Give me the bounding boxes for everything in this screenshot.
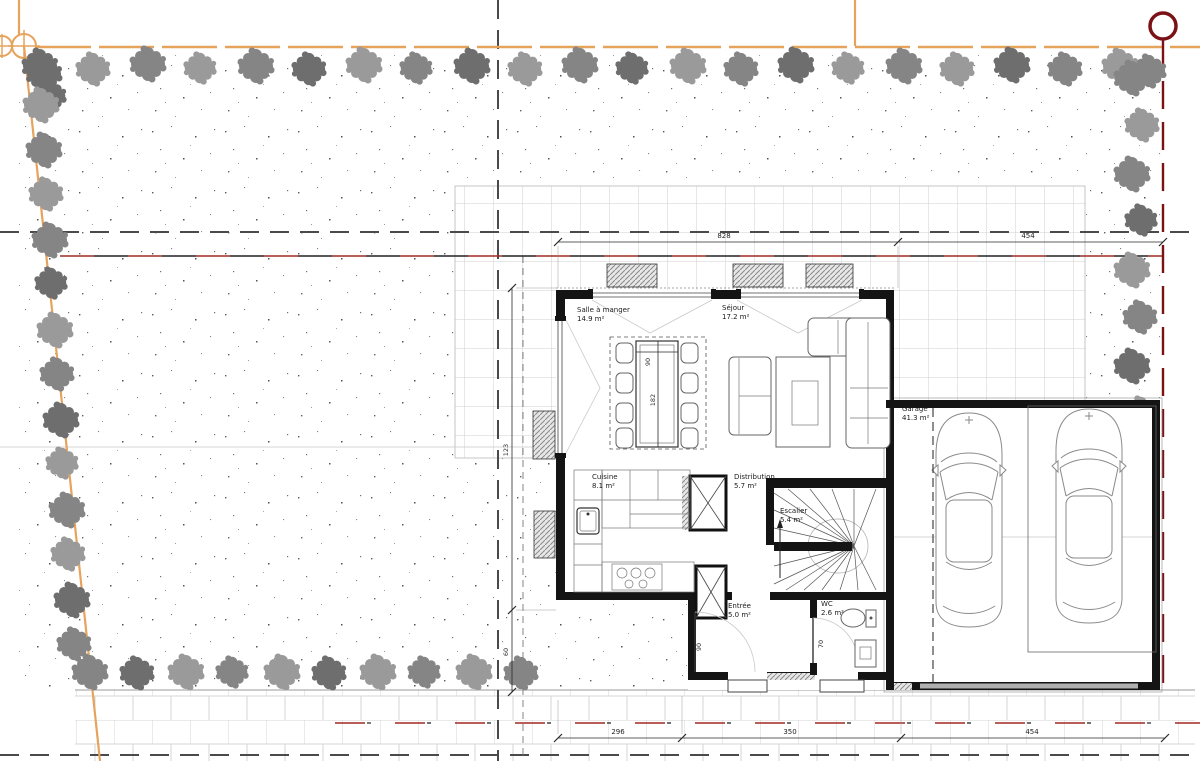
room-area: 41.3 m² (902, 414, 930, 422)
room-label-entree: Entrée 5.0 m² (728, 602, 751, 619)
car-right (1052, 409, 1126, 623)
room-name: Salle à manger (577, 306, 630, 314)
room-name: Cuisine (592, 473, 618, 481)
room-name: Garage (902, 405, 928, 413)
dim-wc-door: 70 (817, 640, 825, 648)
dim-bottom-garage: 454 (1025, 728, 1039, 736)
dim-left-lower: 60 (502, 648, 510, 656)
loveseat (729, 357, 771, 435)
dim-table-depth: 182 (649, 394, 657, 406)
dim-bottom-kitchen: 296 (611, 728, 625, 736)
room-name: WC (821, 600, 833, 608)
sink (577, 508, 599, 534)
room-name: Séjour (722, 304, 744, 312)
room-area: 2.6 m² (821, 609, 844, 617)
room-area: 14.9 m² (577, 315, 605, 323)
dining-table-set: 90 182 (610, 337, 706, 449)
coffee-table (776, 357, 830, 447)
room-name: Escalier (780, 507, 807, 515)
site-plan-drawing: 90 182 (0, 0, 1200, 761)
dim-bottom-entry: 350 (783, 728, 796, 736)
room-area: 5.7 m² (734, 482, 757, 490)
entry-threshold (728, 680, 767, 692)
room-area: 5.4 m² (780, 516, 803, 524)
bottom-paving-area (75, 690, 1195, 761)
room-name: Entrée (728, 602, 751, 610)
dim-table-width: 90 (644, 358, 652, 366)
car-left (932, 413, 1006, 627)
room-area: 17.2 m² (722, 313, 750, 321)
room-label-cuisine: Cuisine 8.1 m² (592, 473, 618, 490)
wc-threshold (820, 680, 864, 692)
room-name: Distribution (734, 473, 775, 481)
dim-top-main: 828 (717, 232, 730, 240)
washbasin (855, 640, 876, 667)
garage-door (920, 684, 1138, 689)
room-label-garage: Garage 41.3 m² (902, 405, 930, 422)
dim-left-upper: 123 (502, 444, 510, 456)
toilet (841, 609, 876, 627)
room-area: 8.1 m² (592, 482, 615, 490)
dim-entry-door: 90 (695, 643, 703, 651)
dim-top-garage: 454 (1021, 232, 1035, 240)
room-area: 5.0 m² (728, 611, 751, 619)
